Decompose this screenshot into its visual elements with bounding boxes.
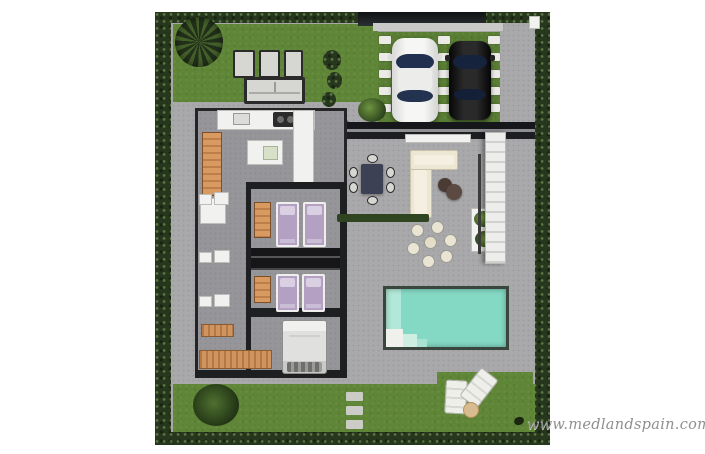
sliding-door-frame: [405, 134, 471, 143]
bed-pillow: [280, 206, 295, 215]
burner: [277, 116, 284, 123]
palm-tree: [175, 17, 223, 67]
double-bed: [282, 320, 327, 374]
exterior-staircase: [485, 132, 506, 264]
pool-steps: [417, 339, 427, 347]
bathroom-sink: [199, 194, 212, 205]
rear-window: [397, 90, 433, 102]
hall-wall: [246, 182, 251, 378]
kitchen-counter-side: [293, 110, 314, 184]
bed-headboard: [287, 362, 322, 372]
sideboard: [199, 350, 272, 369]
garden-armchair: [233, 50, 255, 78]
paver: [379, 87, 391, 95]
bedroom-side-wall: [340, 182, 347, 378]
interior-staircase: [202, 132, 222, 196]
patio-chair: [440, 250, 453, 263]
kitchen-sink: [233, 113, 250, 125]
bed-pillow: [307, 206, 322, 215]
side-table: [463, 402, 479, 418]
sofa-cushion-line: [414, 170, 427, 214]
sofa-cushion-line: [414, 155, 454, 165]
courtyard-tree: [358, 98, 386, 122]
patio-chair: [444, 234, 457, 247]
pool-steps: [403, 334, 417, 347]
paver: [379, 36, 391, 44]
rear-window: [454, 89, 486, 100]
gate-post: [529, 16, 540, 29]
paver: [438, 36, 450, 44]
dining-chair: [349, 167, 358, 178]
bed-foot: [307, 239, 322, 243]
parking-curb-wall: [373, 23, 503, 31]
patio-chair: [422, 255, 435, 268]
side-mirror: [490, 55, 495, 61]
patio-table: [424, 236, 437, 249]
side-mirror: [437, 54, 442, 61]
stair-handrail: [478, 154, 481, 254]
sofa-seat-line: [249, 92, 300, 94]
single-bed: [302, 274, 325, 312]
garden-sofa: [244, 77, 305, 104]
bed-pillow: [306, 278, 321, 287]
single-bed: [276, 274, 299, 312]
bed-pillow: [280, 278, 295, 287]
kitchen-island: [247, 140, 283, 165]
white-car: [392, 38, 438, 122]
page: www.medlandspain.com: [0, 0, 705, 454]
car-roof: [398, 68, 432, 90]
stepping-stone: [346, 392, 363, 401]
patio-chair: [411, 224, 424, 237]
bathroom-toilet: [214, 250, 230, 263]
dining-chair: [367, 196, 378, 205]
single-bed: [276, 202, 299, 247]
single-bed: [303, 202, 326, 247]
dining-chair: [349, 182, 358, 193]
bed-foot: [280, 239, 295, 243]
fence-bush: [327, 72, 342, 89]
wardrobe: [254, 202, 271, 238]
watermark: www.medlandspain.com: [527, 417, 699, 433]
bathroom-sink: [199, 296, 212, 307]
bedroom-divider-wardrobe: [246, 248, 347, 270]
wardrobe: [254, 276, 271, 303]
fence-bush: [323, 50, 341, 70]
patio-chair: [431, 221, 444, 234]
dining-chair: [367, 154, 378, 163]
island-tray: [263, 146, 278, 160]
bathroom-sink: [199, 252, 212, 263]
dining-chair: [386, 182, 395, 193]
paver: [488, 36, 500, 44]
dining-table: [361, 164, 383, 194]
bathroom-toilet: [214, 192, 229, 205]
dining-chair: [386, 167, 395, 178]
dresser: [201, 324, 234, 337]
pool-steps: [386, 329, 403, 347]
garden-armchair: [259, 50, 280, 78]
planter-hedge-strip: [337, 214, 429, 222]
bed-foot: [306, 304, 321, 308]
bathroom-toilet: [214, 294, 230, 307]
patio-chair: [407, 242, 420, 255]
stepping-stone: [346, 406, 363, 415]
bed-foot: [280, 304, 295, 308]
garden-shrub: [193, 384, 239, 426]
coffee-table: [446, 184, 462, 200]
garden-armchair: [284, 50, 303, 78]
swimming-pool: [383, 286, 509, 350]
side-mirror: [388, 54, 393, 61]
floor-plan-render: [155, 12, 550, 445]
stepping-stone: [346, 420, 363, 429]
side-mirror: [445, 55, 450, 61]
windshield: [453, 55, 487, 69]
paver: [379, 70, 391, 78]
bedroom-wall: [246, 182, 347, 189]
fence-bush: [322, 92, 336, 107]
duvet-fold: [289, 335, 320, 337]
black-car: [449, 41, 491, 120]
